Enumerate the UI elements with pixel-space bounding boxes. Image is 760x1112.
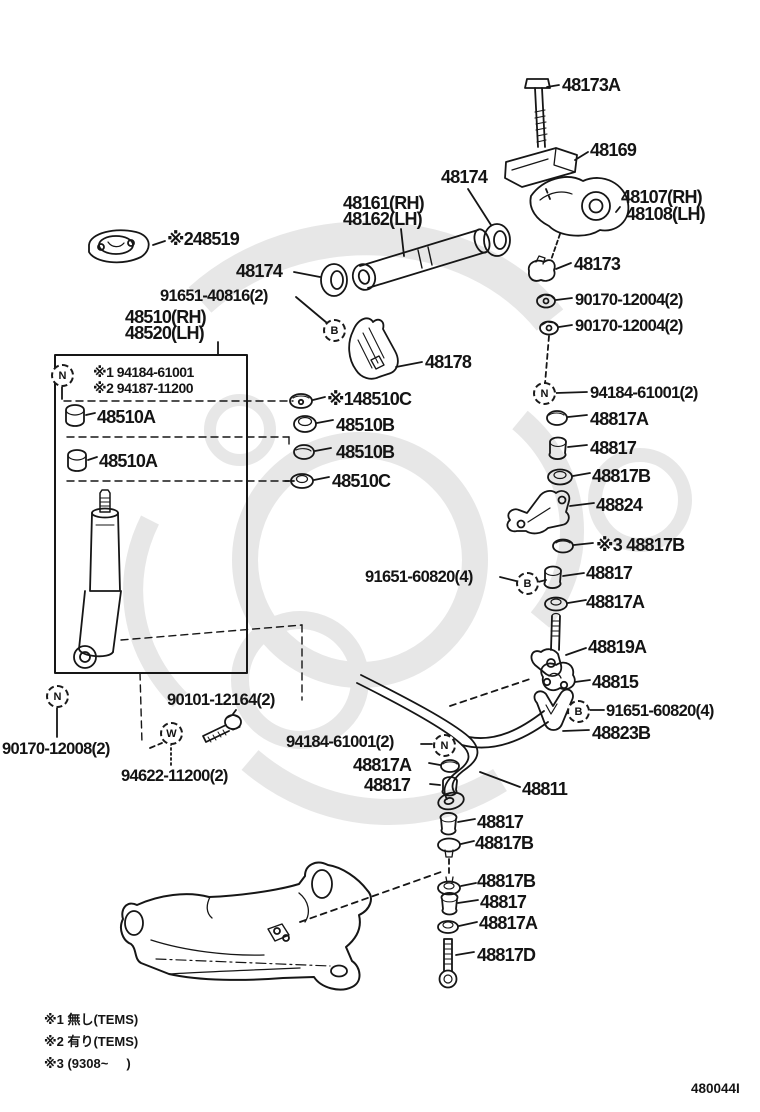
- callout-b-40816: B: [323, 319, 346, 342]
- callout-b-60820b: B: [567, 700, 590, 723]
- part-label-48174-2: 48174: [236, 262, 282, 280]
- part-label-48817A-1: 48817A: [590, 410, 648, 428]
- callout-n-94184: N: [433, 734, 456, 757]
- callout-b-60820a: B: [516, 572, 539, 595]
- part-label-48817A-3: 48817A: [353, 756, 411, 774]
- bolt-90101-drawing: [203, 710, 241, 742]
- part-label-48817-2: 48817: [586, 564, 632, 582]
- leader-40816: [296, 297, 327, 323]
- part-label-48817B-2: ※3 48817B: [596, 536, 684, 554]
- part-label-48510B-2: 48510B: [336, 443, 394, 461]
- part-label-48178: 48178: [425, 353, 471, 371]
- gasket-48519-drawing: [89, 230, 165, 262]
- figure-code: 480044I: [691, 1082, 740, 1096]
- part-label-48811: 48811: [522, 780, 567, 798]
- part-label-48815: 48815: [592, 673, 638, 691]
- part-label-48169: 48169: [590, 141, 636, 159]
- part-label-48162LH: 48162(LH): [343, 210, 422, 228]
- part-label-48817B-1: 48817B: [592, 467, 650, 485]
- lower-control-arm-drawing: [121, 863, 371, 990]
- cushion-48169-drawing: [505, 148, 588, 199]
- part-label-48817A-4: 48817A: [479, 914, 537, 932]
- part-label-48817-3: 48817: [364, 776, 410, 794]
- part-label-90170-12004a: 90170-12004(2): [575, 292, 683, 309]
- part-label-94187-11200: ※2 94187-11200: [93, 381, 193, 395]
- part-label-91651-60820-1: 91651-60820(4): [365, 569, 473, 586]
- part-label-48824: 48824: [596, 496, 642, 514]
- part-label-94184-61001: ※1 94184-61001: [93, 365, 194, 379]
- bolt-48173a-drawing: [525, 79, 559, 147]
- part-label-48817B-3: 48817B: [475, 834, 533, 852]
- part-label-94184-61001-2: 94184-61001(2): [590, 385, 698, 402]
- part-label-48817A-2: 48817A: [586, 593, 644, 611]
- part-label-48510A-2: 48510A: [99, 452, 157, 470]
- callout-w-94622: W: [160, 722, 183, 745]
- part-label-90101-12164: 90101-12164(2): [167, 692, 275, 709]
- parts-diagram: 48173A 48169 48174 48161(RH) 48162(LH) 4…: [0, 0, 760, 1112]
- diagram-line-art: [0, 0, 760, 1112]
- footnote-1: ※1 無し(TEMS): [44, 1013, 138, 1026]
- footnote-2: ※2 有り(TEMS): [44, 1035, 138, 1048]
- part-label-94184-61001-3: 94184-61001(2): [286, 734, 394, 751]
- part-label-48817-5: 48817: [480, 893, 526, 911]
- part-label-48817-4: 48817: [477, 813, 523, 831]
- part-label-48108LH: 48108(LH): [626, 205, 705, 223]
- part-label-48817B-4: 48817B: [477, 872, 535, 890]
- part-label-48817-1: 48817: [590, 439, 636, 457]
- bracket-48178-drawing: [349, 318, 422, 378]
- callout-n-12008: N: [46, 685, 69, 708]
- clamp-48173-drawing: [529, 256, 571, 281]
- part-label-90170-12004b: 90170-12004(2): [575, 318, 683, 335]
- part-label-91651-60820-2: 91651-60820(4): [606, 703, 714, 720]
- callout-n-box: N: [51, 364, 74, 387]
- part-label-48817D: 48817D: [477, 946, 535, 964]
- collar-48174-left-drawing: [294, 264, 347, 296]
- part-label-91651-40816: 91651-40816(2): [160, 288, 268, 305]
- footnote-3: ※3 (9308~ ): [44, 1057, 131, 1070]
- part-label-48510C-2: 48510C: [332, 472, 390, 490]
- callout-n-right: N: [533, 382, 556, 405]
- part-label-48519: ※248519: [167, 230, 239, 248]
- part-label-48174: 48174: [441, 168, 487, 186]
- part-label-48823B: 48823B: [592, 724, 650, 742]
- part-label-48173A: 48173A: [562, 76, 620, 94]
- part-label-48819A: 48819A: [588, 638, 646, 656]
- part-label-48510B-1: 48510B: [336, 416, 394, 434]
- part-label-48510C-1: ※148510C: [327, 390, 411, 408]
- part-label-90170-12008: 90170-12008(2): [2, 741, 110, 758]
- part-label-48520LH: 48520(LH): [125, 324, 204, 342]
- part-label-48510A-1: 48510A: [97, 408, 155, 426]
- knuckle-arm-drawing: [530, 177, 628, 260]
- part-label-48173: 48173: [574, 255, 620, 273]
- part-label-94622-11200: 94622-11200(2): [121, 768, 228, 785]
